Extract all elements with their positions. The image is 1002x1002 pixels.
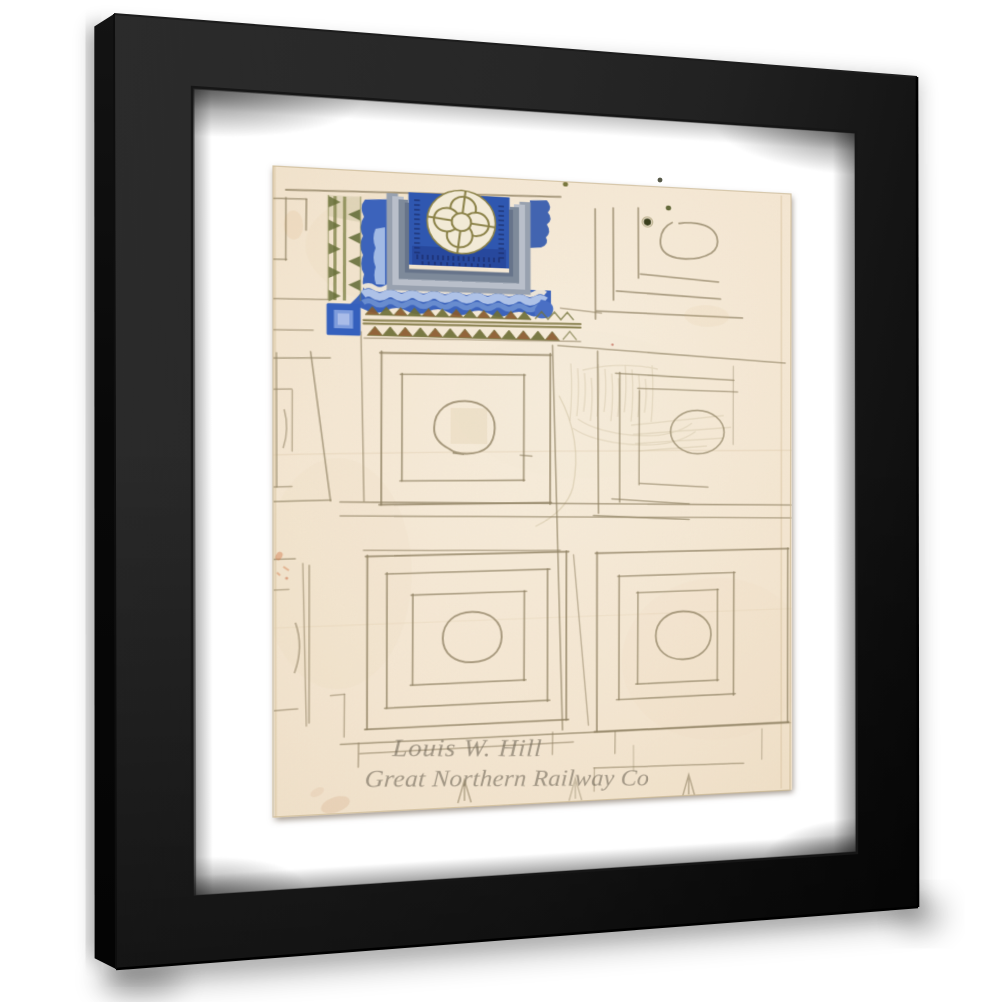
svg-text:Louis W. Hill: Louis W. Hill <box>390 735 542 762</box>
svg-text:Great Northern Railway Co: Great Northern Railway Co <box>364 765 650 792</box>
